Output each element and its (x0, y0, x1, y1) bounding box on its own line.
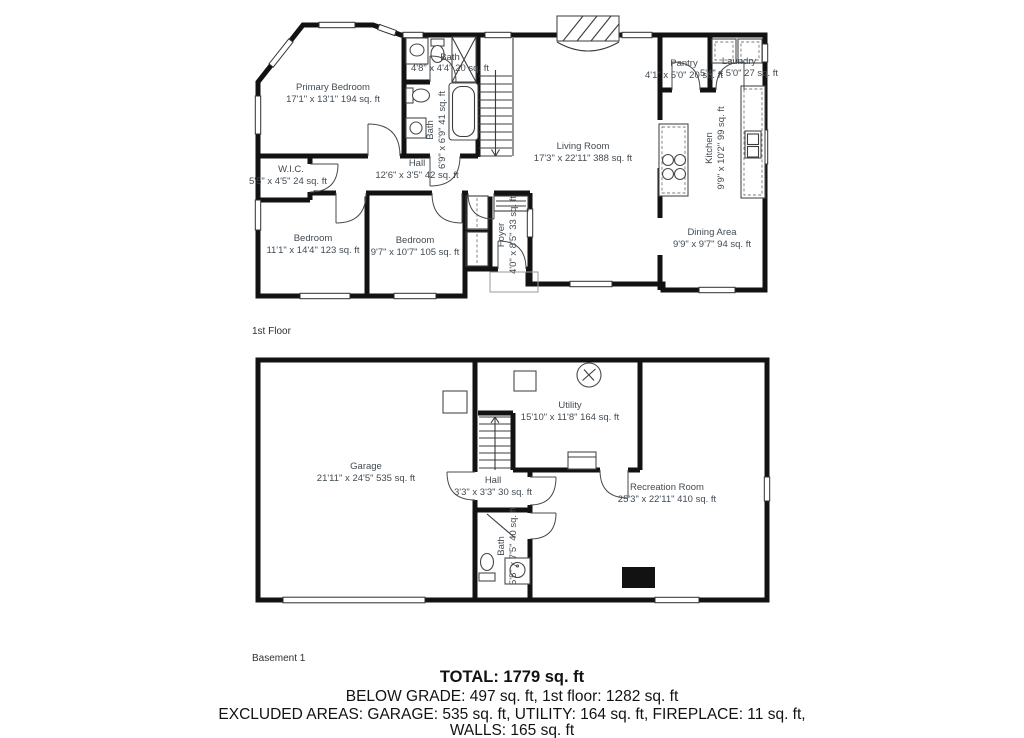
excluded-areas-text: EXCLUDED AREAS: GARAGE: 535 sq. ft, UTIL… (218, 706, 805, 723)
room-dims-label: 12'6" x 3'5" 42 sq. ft (375, 170, 459, 181)
room-dims-label: 9'9" x 10'2" 99 sq. ft (716, 106, 727, 190)
basement-labels: Garage 21'11" x 24'5" 535 sq. ft Utility… (317, 400, 717, 585)
staircase-icon (479, 38, 513, 156)
bedroom-left-side-window (255, 200, 260, 230)
room-dims-label: 17'1" x 13'1" 194 sq. ft (286, 94, 380, 105)
room-name-label: W.I.C. (278, 164, 304, 175)
sink-icon (410, 122, 422, 134)
recreation-window (655, 597, 699, 602)
room-dims-label: 3'3" x 3'3" 30 sq. ft (454, 487, 532, 498)
room-name-label: Hall (485, 475, 501, 486)
toilet-tank-icon (479, 573, 495, 581)
basement-plan: Garage 21'11" x 24'5" 535 sq. ft Utility… (252, 360, 770, 664)
room-dims-label: 9'7" x 10'7" 105 sq. ft (371, 247, 460, 258)
utility-equipment-box (514, 371, 536, 391)
living-top-left-window (485, 32, 511, 37)
sink-icon (410, 44, 424, 56)
room-dims-label: 5'5" x 4'5" 24 sq. ft (249, 176, 327, 187)
room-dims-label: 4'8" x 4'4" 20 sq. ft (411, 63, 489, 74)
bay-window-right (378, 24, 397, 35)
room-dims-label: 15'10" x 11'8" 164 sq. ft (521, 412, 620, 423)
stove-burner-icon (675, 155, 686, 166)
first-floor-labels: Primary Bedroom 17'1" x 13'1" 194 sq. ft… (249, 52, 778, 274)
total-area-text: TOTAL: 1779 sq. ft (440, 668, 585, 686)
bay-window-left (269, 39, 293, 67)
room-name-label: Dining Area (687, 227, 737, 238)
room-dims-label: 5'5" x 7'5" 40 sq. ft (508, 507, 519, 585)
recreation-door (530, 477, 556, 505)
garage-door (283, 597, 425, 603)
room-dims-label: 21'11" x 24'5" 535 sq. ft (317, 473, 416, 484)
grade-area-text: BELOW GRADE: 497 sq. ft, 1st floor: 1282… (346, 688, 679, 705)
toilet-icon (413, 89, 430, 102)
room-name-label: Bath (425, 120, 436, 140)
dining-window (699, 287, 735, 292)
room-name-label: Bath (440, 52, 460, 63)
floor-label-basement: Basement 1 (252, 653, 306, 664)
room-name-label: Foyer (496, 223, 507, 247)
room-dims-label: 6'9" x 6'9" 41 sq. ft (437, 91, 448, 169)
primary-bedroom-window (255, 96, 260, 134)
living-top-right-window (622, 32, 652, 37)
room-dims-label: 4'0" x 8'5" 33 sq. ft (508, 196, 519, 274)
foyer-sidelight-window (527, 209, 532, 237)
room-name-label: Primary Bedroom (296, 82, 370, 93)
floorplan-canvas: Primary Bedroom 17'1" x 13'1" 194 sq. ft… (0, 0, 1024, 738)
utility-appliance-box (568, 452, 596, 469)
walls-area-text: WALLS: 165 sq. ft (450, 722, 575, 738)
basement-bath-door (530, 513, 556, 539)
bedroom-mid-window (394, 293, 436, 298)
room-name-label: Living Room (557, 141, 610, 152)
room-dims-label: 11'1" x 14'4" 123 sq. ft (266, 245, 359, 256)
bedroom-left-door (336, 193, 366, 223)
room-dims-label: 5'4" x 5'0" 27 sq. ft (700, 68, 778, 79)
room-name-label: Bath (496, 536, 507, 556)
room-dims-label: 17'3" x 22'11" 388 sq. ft (534, 153, 633, 164)
area-summary: TOTAL: 1779 sq. ft BELOW GRADE: 497 sq. … (218, 668, 805, 738)
chimney-base-block (622, 567, 655, 588)
room-name-label: Bedroom (396, 235, 435, 246)
bedroom-left-window (300, 293, 350, 298)
bedroom-mid-door (432, 193, 462, 223)
bath-window (403, 32, 423, 37)
floorplan-page: Primary Bedroom 17'1" x 13'1" 194 sq. ft… (0, 0, 1024, 738)
toilet-icon (481, 554, 494, 571)
fireplace-icon (557, 16, 619, 51)
primary-bedroom-door (368, 124, 400, 156)
stove-burner-icon (675, 169, 686, 180)
room-name-label: Bedroom (294, 233, 333, 244)
stove-burner-icon (663, 169, 674, 180)
room-name-label: Pantry (670, 58, 698, 69)
room-name-label: Recreation Room (630, 482, 704, 493)
living-bottom-window (570, 281, 612, 286)
room-name-label: Kitchen (704, 132, 715, 164)
room-name-label: Laundry (722, 56, 757, 67)
room-name-label: Utility (558, 400, 581, 411)
room-name-label: Garage (350, 461, 382, 472)
bay-window-center (319, 22, 355, 27)
room-name-label: Hall (409, 158, 425, 169)
room-dims-label: 25'3" x 22'11" 410 sq. ft (618, 494, 717, 505)
floor-label-1st: 1st Floor (252, 326, 292, 337)
basement-staircase-icon (479, 417, 511, 470)
stove-burner-icon (663, 155, 674, 166)
garage-equipment-box (443, 391, 467, 413)
room-dims-label: 9'9" x 9'7" 94 sq. ft (673, 239, 751, 250)
laundry-window (762, 44, 767, 62)
recreation-side-window (764, 477, 769, 501)
first-floor-plan: Primary Bedroom 17'1" x 13'1" 194 sq. ft… (249, 16, 778, 337)
